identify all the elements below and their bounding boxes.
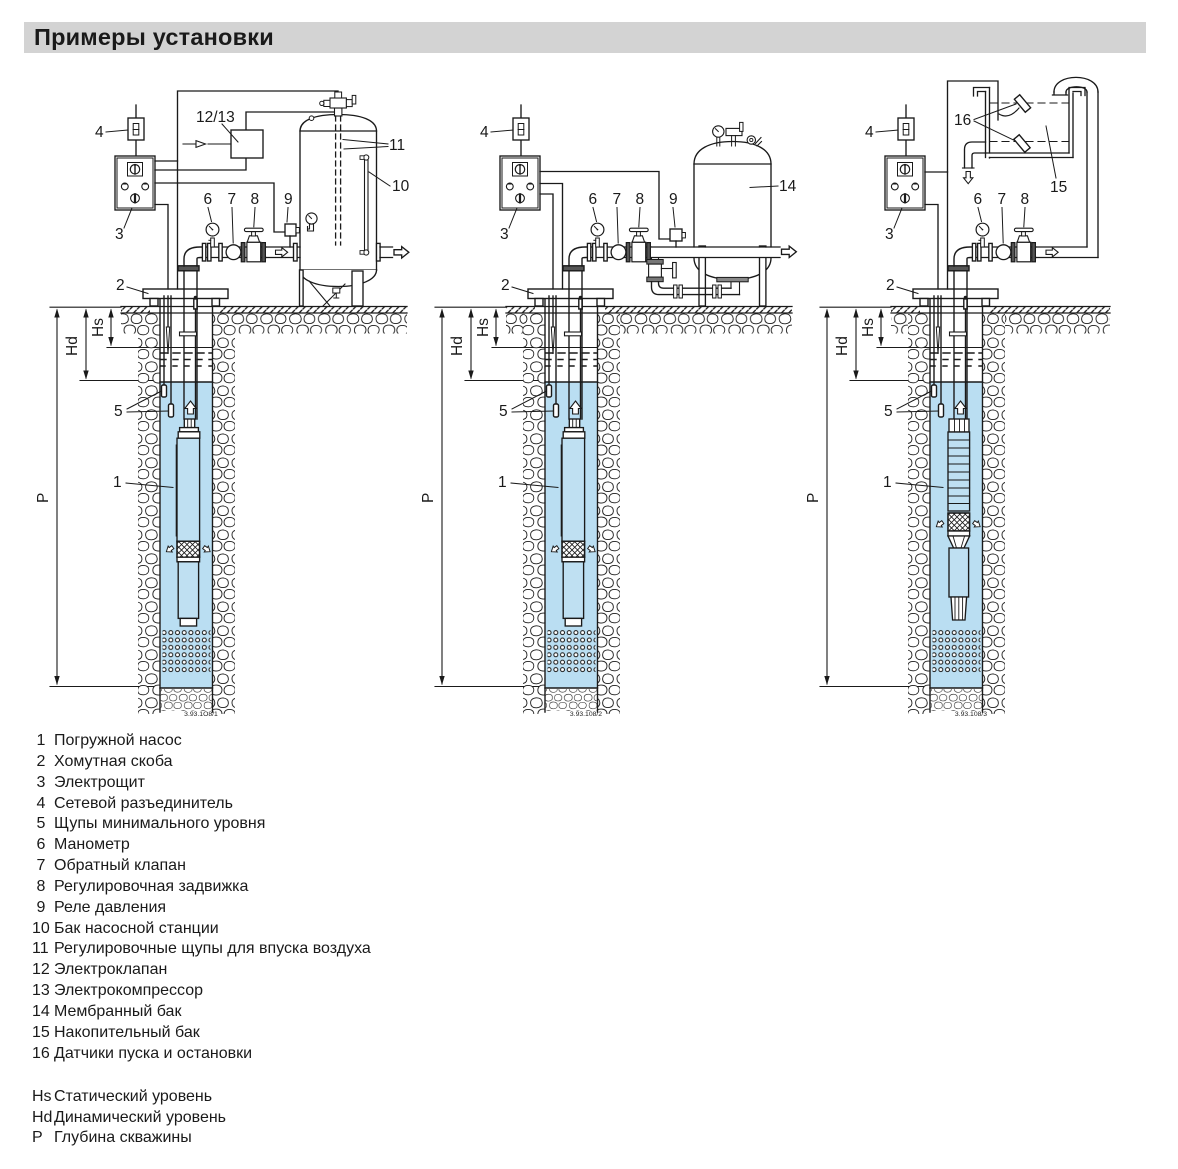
svg-text:10: 10 — [392, 178, 410, 195]
svg-text:14: 14 — [779, 178, 797, 195]
svg-text:16: 16 — [954, 112, 971, 129]
svg-text:3.93.1O8/1: 3.93.1O8/1 — [184, 711, 218, 718]
svg-text:11: 11 — [389, 137, 405, 154]
svg-text:9: 9 — [669, 191, 678, 208]
svg-text:9: 9 — [284, 191, 293, 208]
svg-text:15: 15 — [1050, 179, 1067, 196]
svg-text:3.93.108/2: 3.93.108/2 — [570, 711, 602, 718]
svg-text:12/13: 12/13 — [196, 109, 235, 126]
svg-text:3.93.108/3: 3.93.108/3 — [955, 711, 987, 718]
